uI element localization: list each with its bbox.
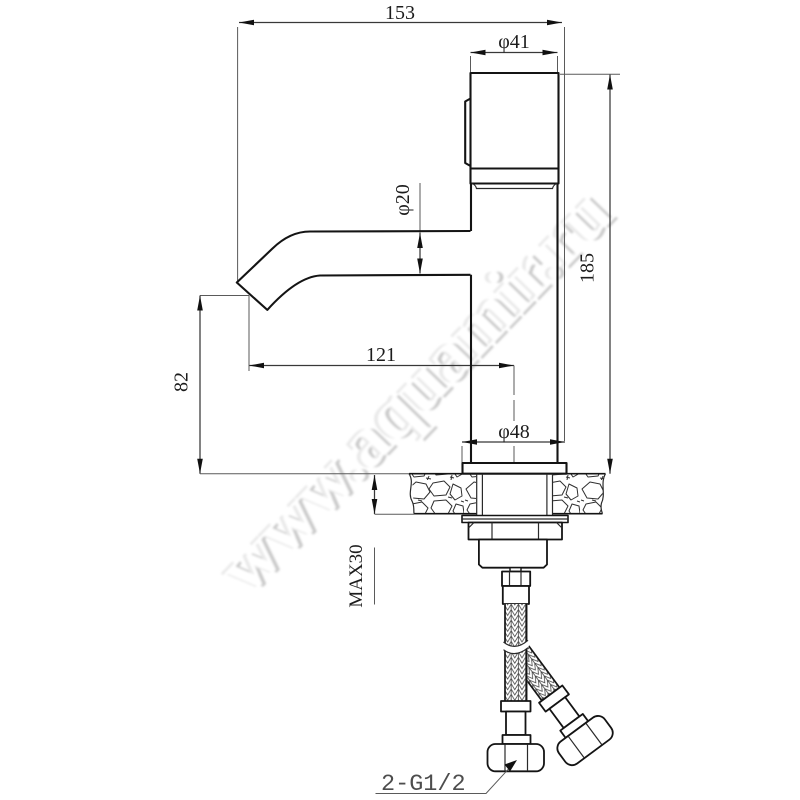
svg-text:φ20: φ20: [392, 184, 414, 216]
svg-text:MAX30: MAX30: [346, 544, 367, 607]
svg-text:82: 82: [171, 372, 193, 392]
svg-text:153: 153: [385, 2, 415, 24]
svg-text:φ41: φ41: [498, 31, 530, 53]
svg-text:121: 121: [366, 344, 396, 366]
svg-text:185: 185: [577, 253, 599, 283]
svg-text:φ48: φ48: [498, 421, 530, 443]
svg-text:2-G1/2: 2-G1/2: [381, 771, 466, 798]
